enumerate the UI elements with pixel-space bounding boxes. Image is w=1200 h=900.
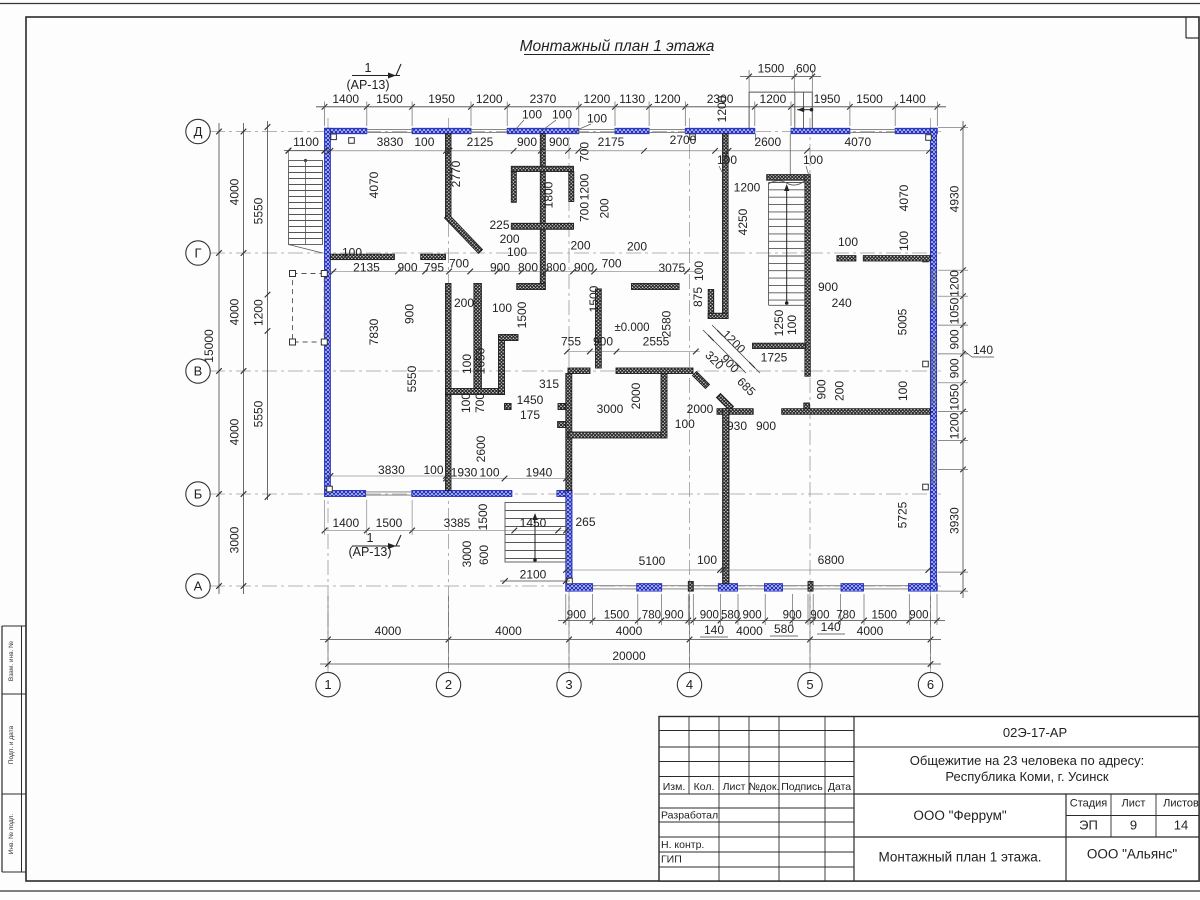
svg-text:5725: 5725	[896, 501, 910, 528]
svg-text:1130: 1130	[619, 92, 645, 106]
svg-text:1500: 1500	[376, 92, 403, 106]
svg-text:4000: 4000	[495, 624, 522, 638]
svg-text:1400: 1400	[899, 92, 926, 106]
svg-text:1950: 1950	[428, 92, 455, 106]
svg-text:9: 9	[1130, 818, 1137, 833]
svg-text:3075: 3075	[658, 261, 685, 275]
svg-text:900: 900	[574, 261, 594, 275]
svg-text:1200: 1200	[715, 95, 729, 122]
svg-text:15000: 15000	[202, 329, 216, 363]
svg-text:5550: 5550	[405, 365, 419, 392]
svg-text:1500: 1500	[515, 301, 529, 328]
svg-text:100: 100	[675, 417, 695, 431]
svg-text:700: 700	[578, 142, 592, 162]
svg-text:2: 2	[445, 677, 452, 692]
svg-text:1400: 1400	[332, 516, 359, 530]
svg-text:Б: Б	[194, 487, 203, 502]
svg-text:900: 900	[756, 419, 776, 433]
svg-text:3000: 3000	[228, 526, 242, 553]
svg-text:200: 200	[598, 198, 612, 218]
svg-text:2175: 2175	[598, 135, 625, 149]
svg-text:2600: 2600	[754, 135, 781, 149]
svg-text:100: 100	[785, 315, 799, 335]
svg-text:Н. контр.: Н. контр.	[661, 839, 704, 851]
svg-text:900: 900	[815, 379, 829, 399]
svg-text:5: 5	[806, 677, 813, 692]
svg-text:3000: 3000	[460, 540, 474, 567]
svg-text:100: 100	[459, 393, 473, 413]
svg-text:2000: 2000	[687, 402, 714, 416]
svg-text:1940: 1940	[526, 466, 553, 480]
svg-text:100: 100	[587, 112, 607, 126]
svg-text:900: 900	[664, 610, 683, 622]
svg-text:1: 1	[365, 61, 372, 75]
svg-text:4000: 4000	[736, 624, 763, 638]
svg-text:900: 900	[700, 610, 719, 622]
svg-text:1650: 1650	[474, 347, 488, 374]
svg-text:600: 600	[796, 62, 816, 76]
svg-text:900: 900	[818, 280, 838, 294]
svg-text:100: 100	[460, 354, 474, 374]
svg-text:7830: 7830	[367, 318, 381, 345]
svg-text:02Э-17-АР: 02Э-17-АР	[1003, 725, 1067, 740]
svg-text:14: 14	[1174, 818, 1188, 833]
svg-text:Инв. № подл.: Инв. № подл.	[8, 814, 15, 855]
svg-text:1200: 1200	[760, 92, 787, 106]
svg-text:Общежитие на 23 человека по ад: Общежитие на 23 человека по адресу:	[910, 753, 1144, 768]
svg-text:900: 900	[948, 329, 962, 349]
svg-text:800: 800	[546, 261, 566, 275]
svg-text:5005: 5005	[896, 308, 910, 335]
svg-text:Листов: Листов	[1163, 798, 1199, 810]
svg-text:3830: 3830	[378, 463, 405, 477]
svg-text:780: 780	[642, 610, 661, 622]
svg-text:100: 100	[479, 466, 499, 480]
svg-text:225: 225	[489, 218, 509, 232]
svg-text:Стадия: Стадия	[1070, 798, 1108, 810]
svg-text:100: 100	[803, 153, 823, 167]
svg-text:Разработал: Разработал	[661, 810, 718, 822]
svg-text:3: 3	[565, 677, 572, 692]
svg-text:(АР-13): (АР-13)	[348, 545, 391, 559]
svg-text:700: 700	[449, 257, 469, 271]
svg-text:900: 900	[403, 304, 417, 324]
svg-text:ЭП: ЭП	[1079, 818, 1098, 833]
svg-text:700: 700	[602, 257, 622, 271]
svg-text:Лист: Лист	[1122, 798, 1146, 810]
svg-text:200: 200	[570, 239, 590, 253]
svg-text:900: 900	[743, 610, 762, 622]
svg-text:100: 100	[414, 135, 434, 149]
svg-text:Кол.: Кол.	[694, 781, 715, 793]
svg-text:1450: 1450	[520, 516, 547, 530]
svg-text:1200: 1200	[584, 92, 611, 106]
svg-text:795: 795	[424, 261, 444, 275]
svg-text:930: 930	[727, 419, 747, 433]
svg-text:875: 875	[691, 287, 705, 307]
svg-text:1500: 1500	[872, 610, 898, 622]
svg-text:1: 1	[324, 677, 331, 692]
svg-text:Монтажный план 1 этажа.: Монтажный план 1 этажа.	[879, 850, 1042, 865]
svg-text:1200: 1200	[654, 92, 681, 106]
svg-text:100: 100	[697, 553, 717, 567]
svg-text:100: 100	[717, 153, 737, 167]
svg-text:±0.000: ±0.000	[614, 322, 649, 334]
svg-text:2125: 2125	[467, 135, 494, 149]
svg-text:1950: 1950	[814, 92, 841, 106]
svg-text:5550: 5550	[252, 197, 266, 224]
svg-text:2600: 2600	[474, 435, 488, 462]
svg-text:1200: 1200	[252, 299, 266, 326]
svg-text:900: 900	[567, 610, 586, 622]
svg-text:4: 4	[686, 677, 693, 692]
svg-text:4070: 4070	[844, 135, 871, 149]
svg-text:200: 200	[500, 232, 520, 246]
svg-text:900: 900	[948, 358, 962, 378]
svg-text:2000: 2000	[629, 382, 643, 409]
svg-text:4000: 4000	[375, 624, 402, 638]
svg-text:Дата: Дата	[828, 781, 851, 793]
svg-text:3385: 3385	[444, 516, 471, 530]
svg-text:4930: 4930	[948, 185, 962, 212]
svg-text:1400: 1400	[332, 92, 359, 106]
svg-text:200: 200	[454, 296, 474, 310]
svg-text:900: 900	[909, 610, 928, 622]
svg-text:1200: 1200	[578, 173, 592, 200]
svg-text:1500: 1500	[758, 62, 785, 76]
svg-text:100: 100	[492, 301, 512, 315]
svg-text:Подпись: Подпись	[781, 781, 823, 793]
svg-text:1725: 1725	[761, 351, 788, 365]
svg-text:240: 240	[832, 296, 852, 310]
svg-text:1500: 1500	[476, 503, 490, 530]
svg-text:1930: 1930	[451, 466, 478, 480]
svg-text:100: 100	[897, 231, 911, 251]
svg-text:Республика Коми, г. Усинск: Республика Коми, г. Усинск	[945, 769, 1108, 784]
svg-text:Подп. и дата: Подп. и дата	[8, 725, 15, 764]
svg-text:900: 900	[517, 135, 537, 149]
svg-text:Д: Д	[194, 124, 203, 139]
svg-text:1050: 1050	[948, 384, 962, 411]
svg-text:1200: 1200	[948, 270, 962, 297]
svg-text:А: А	[194, 579, 203, 594]
svg-text:4000: 4000	[857, 624, 884, 638]
svg-text:4070: 4070	[367, 171, 381, 198]
svg-text:1200: 1200	[948, 412, 962, 439]
svg-text:ООО "Альянс": ООО "Альянс"	[1087, 847, 1177, 862]
svg-text:580: 580	[774, 622, 794, 636]
svg-text:600: 600	[477, 545, 491, 565]
svg-text:1800: 1800	[542, 181, 556, 208]
svg-text:1450: 1450	[517, 393, 544, 407]
svg-text:4250: 4250	[736, 208, 750, 235]
svg-text:6: 6	[927, 677, 934, 692]
svg-text:Монтажный план 1 этажа: Монтажный план 1 этажа	[520, 38, 715, 55]
svg-text:4000: 4000	[616, 624, 643, 638]
svg-text:5100: 5100	[639, 554, 666, 568]
svg-text:Г: Г	[194, 246, 201, 261]
svg-text:2770: 2770	[449, 160, 463, 187]
svg-text:140: 140	[973, 343, 993, 357]
svg-text:(АР-13): (АР-13)	[346, 78, 389, 92]
svg-text:2100: 2100	[520, 568, 547, 582]
svg-text:1100: 1100	[293, 135, 319, 149]
svg-text:200: 200	[833, 381, 847, 401]
svg-text:1050: 1050	[948, 297, 962, 324]
svg-text:100: 100	[552, 108, 572, 122]
svg-text:100: 100	[522, 108, 542, 122]
svg-text:20000: 20000	[612, 649, 646, 663]
svg-text:2135: 2135	[353, 261, 380, 275]
svg-text:Изм.: Изм.	[663, 781, 686, 793]
svg-text:3830: 3830	[377, 135, 404, 149]
svg-text:№док.: №док.	[749, 781, 780, 793]
svg-text:ГИП: ГИП	[661, 854, 682, 866]
svg-text:900: 900	[593, 335, 613, 349]
svg-text:100: 100	[896, 381, 910, 401]
svg-text:755: 755	[561, 335, 581, 349]
svg-text:140: 140	[704, 623, 724, 637]
svg-text:4000: 4000	[228, 418, 242, 445]
svg-text:100: 100	[342, 246, 362, 260]
svg-text:1500: 1500	[604, 610, 630, 622]
svg-text:4070: 4070	[897, 184, 911, 211]
svg-text:900: 900	[549, 135, 569, 149]
svg-text:ООО "Феррум": ООО "Феррум"	[913, 808, 1007, 823]
svg-text:3930: 3930	[948, 507, 962, 534]
svg-text:900: 900	[490, 261, 510, 275]
svg-text:700: 700	[578, 202, 592, 222]
svg-text:100: 100	[507, 245, 527, 259]
svg-text:580: 580	[721, 610, 740, 622]
svg-text:200: 200	[627, 240, 647, 254]
svg-text:5550: 5550	[252, 400, 266, 427]
svg-text:140: 140	[821, 620, 841, 634]
svg-text:100: 100	[838, 235, 858, 249]
svg-text:4000: 4000	[228, 298, 242, 325]
svg-text:900: 900	[397, 261, 417, 275]
svg-text:3000: 3000	[597, 402, 624, 416]
svg-text:315: 315	[539, 377, 559, 391]
svg-text:700: 700	[473, 393, 487, 413]
svg-text:В: В	[194, 364, 203, 379]
svg-text:1: 1	[367, 531, 374, 545]
svg-text:2700: 2700	[670, 133, 697, 147]
svg-text:100: 100	[423, 463, 443, 477]
svg-text:1500: 1500	[376, 516, 403, 530]
svg-text:1200: 1200	[734, 181, 761, 195]
svg-text:2370: 2370	[530, 92, 557, 106]
svg-text:2580: 2580	[660, 310, 674, 337]
svg-text:265: 265	[575, 515, 595, 529]
svg-text:6800: 6800	[818, 553, 845, 567]
svg-text:100: 100	[692, 261, 706, 281]
svg-text:1500: 1500	[587, 285, 601, 312]
svg-text:900: 900	[783, 610, 802, 622]
svg-text:175: 175	[520, 408, 540, 422]
svg-text:1250: 1250	[772, 309, 786, 336]
svg-text:Лист: Лист	[723, 781, 746, 793]
svg-text:Взам. инв. №: Взам. инв. №	[8, 641, 15, 681]
svg-text:4000: 4000	[228, 178, 242, 205]
svg-text:1200: 1200	[476, 92, 503, 106]
svg-text:1500: 1500	[856, 92, 883, 106]
